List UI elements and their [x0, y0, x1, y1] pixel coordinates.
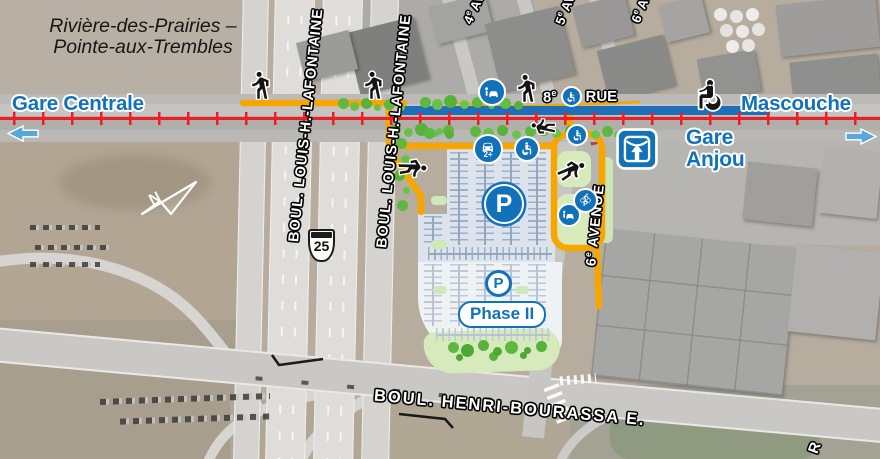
parking-p-icon: P	[484, 184, 524, 224]
region-title-line2: Pointe-aux-Trembles	[53, 36, 233, 58]
station-name-line1: Gare	[686, 126, 733, 149]
wheelchair-person-icon	[692, 77, 728, 113]
bush-cluster	[338, 98, 349, 109]
pedestrian-icon	[359, 70, 389, 100]
pedestrian-icon	[396, 151, 431, 186]
bush-cluster	[420, 97, 431, 108]
mascouche-rail-line	[0, 117, 880, 120]
bike-parking-icon: P	[573, 188, 598, 213]
train-station-logo-icon	[616, 128, 658, 170]
pedestrian-icon	[246, 70, 276, 100]
bike-parking-p: P	[583, 201, 588, 208]
pedestrian-icon	[530, 114, 556, 140]
terminus-gare-centrale: Gare Centrale	[12, 92, 144, 116]
bush-cluster	[424, 128, 435, 139]
region-title: Rivière-des-Prairies – Pointe-aux-Trembl…	[28, 16, 258, 57]
carpool-parking-icon: 2+	[473, 134, 503, 164]
station-area-map: Rivière-des-Prairies – Pointe-aux-Trembl…	[0, 0, 880, 459]
carpool-badge: 2+	[483, 151, 492, 158]
wheelchair-icon	[561, 86, 582, 107]
terminus-mascouche: Mascouche	[741, 92, 851, 116]
station-name: Gare Anjou	[686, 127, 744, 171]
plan-overlay	[0, 0, 880, 459]
pedestrian-icon	[512, 73, 542, 103]
region-title-line1: Rivière-des-Prairies –	[49, 15, 236, 37]
highway-number: 25	[310, 238, 333, 254]
street-label-8e-rue: 8e RUE	[543, 86, 617, 107]
station-name-line2: Anjou	[686, 148, 744, 171]
station-wheelchair-icon	[566, 124, 588, 146]
kiss-and-ride-icon	[478, 78, 506, 106]
parking-p-phase2-icon: P	[485, 270, 512, 297]
street-label-text: RUE	[586, 88, 618, 105]
phase2-label: Phase II	[458, 301, 546, 328]
bush-cluster	[448, 342, 459, 353]
street-label-text: 8e	[543, 88, 557, 106]
